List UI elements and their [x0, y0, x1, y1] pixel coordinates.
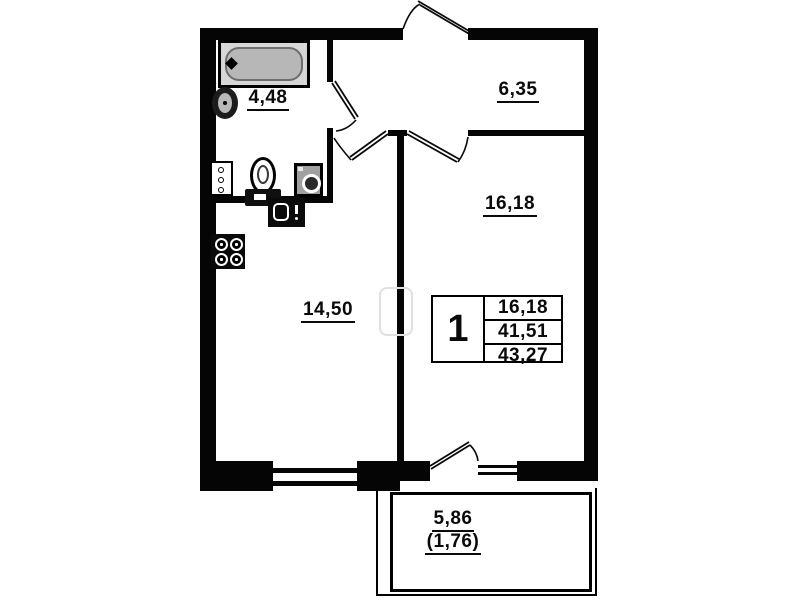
room-door-arc [458, 137, 468, 162]
room-door [407, 131, 468, 162]
sink-basin [273, 203, 289, 221]
wall-bathroom-right-bottom [327, 128, 333, 198]
washing-machine-panel [298, 167, 303, 171]
toilet-bowl-inner [257, 165, 269, 184]
cabinet-knob [218, 167, 224, 173]
wall-right-exterior [584, 28, 598, 481]
stove-burner [230, 253, 243, 266]
apartment-area-value: 41,51 [485, 319, 561, 345]
sink-drain [295, 217, 298, 220]
entrance-door [403, 1, 471, 35]
wall-hallway-right [468, 130, 584, 136]
stove-burner [230, 238, 243, 251]
kitchen-door [334, 131, 388, 160]
stove-burner [215, 238, 228, 251]
faint-furniture-outline [379, 287, 413, 336]
rooms-count-cell: 1 [433, 297, 485, 361]
balcony-reduced-area-label: (1,76) [414, 531, 492, 553]
wall-top-left [200, 28, 403, 40]
stove-icon [211, 234, 245, 269]
wall-bottom-room-right [517, 461, 598, 481]
window-mullion [478, 472, 517, 475]
kitchen-door-arc [334, 138, 351, 160]
sink-faucet [295, 205, 298, 214]
balcony-door-arc [470, 445, 478, 461]
balcony-area-label: 5,86 [422, 508, 484, 530]
cabinet-knob [218, 177, 224, 183]
washbasin-icon [212, 87, 238, 119]
wall-top-right [468, 28, 598, 40]
stove-burner [215, 253, 228, 266]
area-rows: 16,18 41,51 43,27 [485, 297, 561, 361]
floor-plan: 4,48 6,35 16,18 14,50 5,86 (1,76) 1 16,1… [0, 0, 799, 600]
hallway-area-label: 6,35 [487, 79, 549, 101]
utility-cabinet-icon [210, 161, 233, 196]
kitchen-sink-icon [268, 198, 305, 227]
balcony-door [430, 442, 478, 469]
wall-bottom-kitchen-left [200, 461, 273, 491]
total-area-value: 43,27 [485, 345, 561, 367]
bathroom-door-arc [336, 120, 356, 131]
window-mullion [273, 468, 357, 473]
kitchen-living-area-label: 14,50 [297, 299, 359, 321]
bathtub-icon [218, 40, 310, 88]
kitchen-window [273, 461, 357, 491]
apartment-info-table: 1 16,18 41,51 43,27 [431, 295, 563, 363]
window-mullion [273, 481, 357, 486]
toilet-tank-button [254, 194, 266, 200]
cabinet-knob [218, 187, 224, 193]
bathroom-area-label: 4,48 [238, 87, 298, 109]
living-area-value: 16,18 [485, 297, 561, 319]
washbasin-drain [223, 101, 227, 105]
washing-machine-drum [302, 174, 321, 193]
wall-bottom-kitchen-right [357, 461, 400, 491]
window-mullion [478, 465, 517, 468]
wall-bathroom-right-top [327, 28, 333, 82]
entrance-door-arc [403, 4, 420, 29]
room-window [478, 461, 517, 481]
washing-machine-icon [294, 163, 323, 197]
living-room-area-label: 16,18 [479, 193, 541, 215]
bathroom-door [332, 81, 358, 131]
